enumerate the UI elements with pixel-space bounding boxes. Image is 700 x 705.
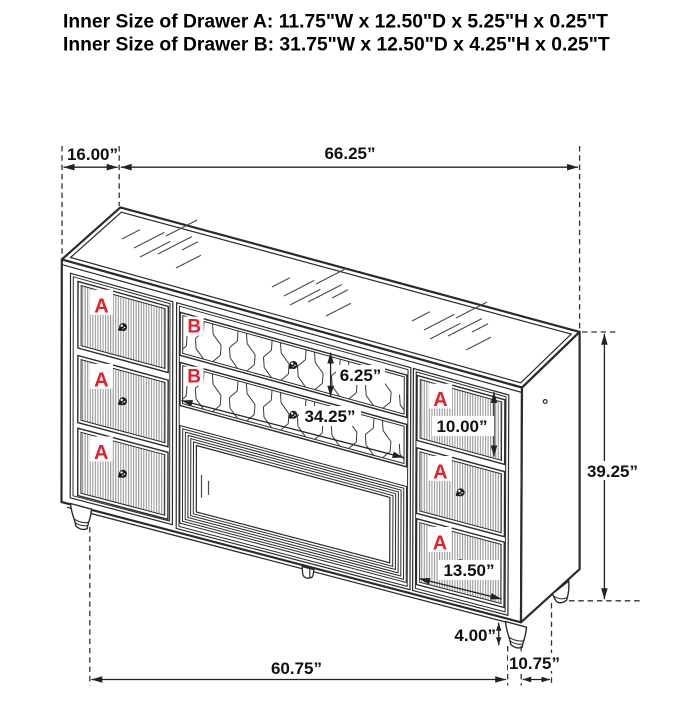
svg-text:A: A (94, 370, 108, 392)
svg-text:16.00”: 16.00” (67, 145, 118, 164)
svg-text:39.25”: 39.25” (587, 462, 638, 481)
svg-text:Inner Size of Drawer A: 11.75": Inner Size of Drawer A: 11.75"W x 12.50"… (63, 12, 608, 33)
svg-text:66.25”: 66.25” (324, 144, 375, 163)
svg-text:34.25”: 34.25” (304, 407, 355, 426)
svg-text:6.25”: 6.25” (340, 366, 382, 385)
svg-text:A: A (433, 532, 447, 554)
svg-text:A: A (433, 461, 447, 483)
svg-text:13.50”: 13.50” (443, 561, 494, 580)
svg-text:B: B (187, 367, 201, 388)
svg-text:4.00”: 4.00” (454, 626, 496, 645)
svg-text:A: A (94, 442, 108, 464)
svg-text:A: A (433, 389, 447, 411)
svg-text:A: A (94, 296, 108, 318)
svg-text:Inner Size of Drawer B: 31.75": Inner Size of Drawer B: 31.75"W x 12.50"… (63, 35, 610, 56)
svg-text:B: B (187, 317, 201, 338)
svg-text:10.00”: 10.00” (436, 417, 487, 436)
svg-text:60.75”: 60.75” (271, 659, 322, 678)
svg-text:10.75”: 10.75” (509, 654, 560, 673)
